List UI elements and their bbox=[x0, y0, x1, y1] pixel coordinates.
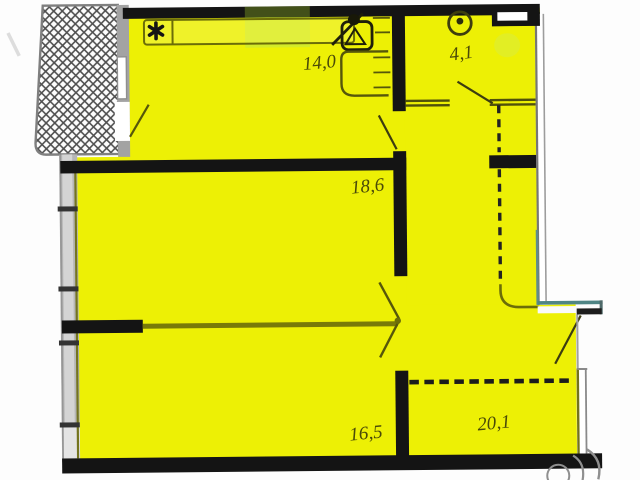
svg-text:16,5: 16,5 bbox=[348, 422, 383, 446]
svg-text:18,6: 18,6 bbox=[350, 175, 386, 199]
svg-text:14,0: 14,0 bbox=[302, 51, 338, 75]
svg-text:4,1: 4,1 bbox=[448, 42, 474, 66]
svg-text:20,1: 20,1 bbox=[476, 411, 511, 435]
